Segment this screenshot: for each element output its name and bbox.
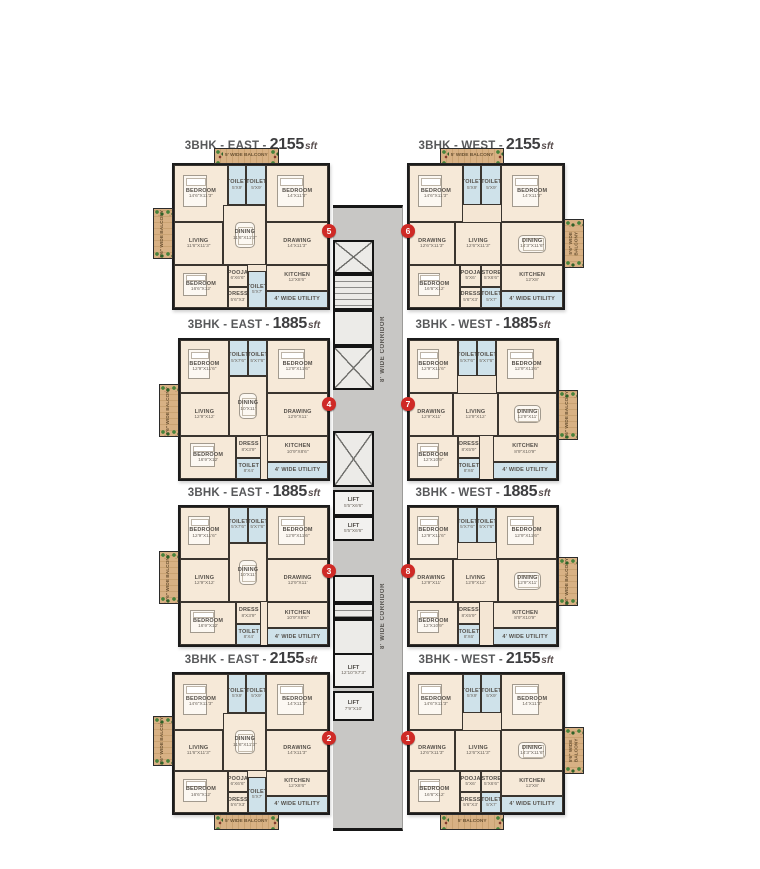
room-dims-label: 5'X7' (486, 803, 496, 808)
room-utility: 4' WIDE UTILITY (493, 628, 557, 645)
room-label: 4' WIDE UTILITY (502, 467, 548, 473)
room-bedroom3: BEDROOM16'9"X12' (180, 602, 236, 645)
room-drawing: DRAWING12'9"X11' (267, 393, 328, 436)
room-bedroom1: BEDROOM14'6"X11'3" (174, 674, 228, 730)
plants-icon (160, 385, 178, 392)
room-dims-label: 5'X7' (252, 290, 262, 295)
unit-title: 3BHK - WEST -1885sft (407, 315, 559, 333)
unit-6-floorplan: BEDROOM14'6"X11'3"TOILET5'X9'TOILET5'X9'… (407, 163, 565, 310)
room-dining: DINING11'6"X11'3" (223, 205, 266, 265)
room-dims-label: 12'9"X11'6" (421, 367, 445, 372)
room-dims-label: 5'X9' (251, 694, 261, 699)
unit-title-area: 2155 (506, 136, 540, 153)
room-bedroom1: BEDROOM12'9"X11'6" (409, 340, 458, 393)
room-dims-label: 10'X11' (240, 573, 255, 578)
room-dress: DRESS8'X3'9" (236, 602, 261, 624)
unit-3-floorplan: BEDROOM12'9"X11'6"TOILET5'X7'6"TOILET5'X… (178, 505, 330, 647)
unit-title-area: 1885 (273, 315, 307, 332)
room-dress: DRESS5'6"X3' (228, 287, 248, 308)
room-drawing: DRAWING14'X11'3" (266, 222, 328, 265)
room-dims-label: 5'X7'6" (460, 525, 475, 530)
room-bedroom2: BEDROOM14'X11'3" (266, 674, 328, 730)
room-dress: DRESS8'X5'9" (458, 602, 480, 624)
room-drawing: DRAWING12'9"X11' (409, 559, 453, 602)
plants-icon (154, 251, 172, 258)
room-dims-label: 12'9"X11'6" (286, 367, 310, 372)
room-dims-label: 12'9"X12' (466, 581, 486, 586)
lift-label: LIFT (348, 700, 360, 707)
room-dining: DINING11'6"X11'3" (223, 713, 266, 771)
room-utility: 4' WIDE UTILITY (493, 462, 557, 479)
room-dims-label: 12'9"X11'6" (515, 534, 539, 539)
open-shaft (333, 310, 374, 346)
room-label: 4' WIDE UTILITY (509, 801, 555, 807)
plants-icon (215, 149, 223, 163)
room-toilet2: TOILET5'X7'6" (477, 507, 496, 543)
room-bedroom3: BEDROOM16'6"X12' (409, 265, 460, 308)
unit-8-floorplan: BEDROOM12'9"X11'6"TOILET5'X7'6"TOILET5'X… (407, 505, 559, 647)
room-dims-label: 12'X8'6" (288, 278, 305, 283)
room-dims-label: 8'9"X10'9" (514, 450, 536, 455)
room-kitchen: KITCHEN12'X8'6" (266, 771, 328, 796)
room-label: 4' WIDE UTILITY (275, 467, 321, 473)
unit-number-badge: 6 (401, 224, 415, 238)
room-dims-label: 5'X7'6" (479, 359, 494, 364)
room-dress: DRESS5'6"X3' (228, 792, 248, 813)
plants-icon (441, 149, 449, 163)
room-dims-label: 12'9"X11' (518, 415, 538, 420)
lift-shaft-cross (333, 240, 374, 274)
room-pooja: POOJA6'X6'6" (228, 771, 248, 792)
plants-icon (154, 209, 172, 216)
plants-icon (270, 149, 278, 163)
room-dining: DINING14'3"X11'6" (501, 730, 563, 772)
unit-1-floorplan: BEDROOM14'6"X11'3"TOILET5'X9'TOILET5'X9'… (407, 672, 565, 815)
room-dims-label: 16'6"X12' (191, 287, 211, 292)
room-pooja: POOJA6'X6'6" (228, 265, 248, 286)
room-dims-label: 5'X7' (486, 298, 496, 303)
unit-title: 3BHK - EAST -1885sft (178, 315, 330, 333)
unit-title-type: 3BHK - EAST - (188, 319, 270, 331)
room-dims-label: 8'X5'9" (462, 614, 477, 619)
room-living: LIVING11'6"X11'3" (174, 222, 223, 265)
room-toilet2: TOILET5'X9' (246, 165, 266, 205)
plants-icon (565, 260, 583, 267)
plants-icon (565, 766, 583, 773)
room-dims-label: 5'6"X3' (463, 298, 478, 303)
unit-title-area: 1885 (503, 315, 537, 332)
room-dims-label: 12'9"X11'6" (192, 367, 216, 372)
room-dims-label: 14'X11'3" (287, 244, 307, 249)
room-bedroom2: BEDROOM14'X11'3" (501, 674, 563, 730)
plants-icon (441, 815, 449, 829)
unit-title-type: 3BHK - WEST - (415, 487, 499, 499)
room-toilet1: TOILET5'X7'6" (458, 340, 477, 376)
wide-balcony: 5' WIDE BALCONY (214, 148, 279, 164)
room-dims-label: 14'6"X11'3" (189, 702, 213, 707)
room-drawing: DRAWING12'9"X11' (409, 393, 453, 436)
room-toilet1: TOILET5'X9' (463, 165, 481, 205)
room-toilet1: TOILET5'X9' (228, 165, 246, 205)
staircase (333, 274, 374, 310)
room-dims-label: 12'9"X11' (421, 415, 441, 420)
unit-number-badge: 1 (401, 731, 415, 745)
typical-floor-plan: LIFT5'5"X6'6"LIFT5'5"X6'6"LIFT12'10"X7'3… (0, 0, 760, 869)
wide-balcony: 5' BALCONY (440, 814, 505, 830)
room-dims-label: 5'X9' (486, 186, 496, 191)
room-dims-label: 5'X9' (486, 694, 496, 699)
unit-title-sft: sft (541, 655, 553, 666)
balcony-label: 5'6" WIDE BALCONY (166, 387, 171, 435)
room-kitchen: KITCHEN12'X8'6" (266, 265, 328, 291)
unit-number-badge: 7 (401, 397, 415, 411)
room-dims-label: 12'9"X12' (466, 415, 486, 420)
room-dims-label: 5'X7' (252, 795, 262, 800)
room-dims-label: 12'6"X11'3" (466, 751, 490, 756)
room-label: 4' WIDE UTILITY (275, 634, 321, 640)
unit-title-area: 1885 (273, 483, 307, 500)
balcony-label: 5' WIDE BALCONY (451, 153, 494, 158)
room-dims-label: 8'X3'9" (241, 614, 256, 619)
room-dims-label: 12'9"X11' (421, 581, 441, 586)
plants-icon (559, 391, 577, 398)
unit-title-area: 1885 (503, 483, 537, 500)
room-dims-label: 12'9"X11'6" (192, 534, 216, 539)
room-dims-label: 5'X9' (232, 694, 242, 699)
room-dims-label: 14'6"X11'3" (424, 702, 448, 707)
unit-title-sft: sft (541, 141, 553, 152)
room-dims-label: 14'X11'3" (522, 702, 542, 707)
lift: LIFT5'5"X6'6" (333, 490, 374, 516)
room-dims-label: 5'6"X3' (231, 803, 246, 808)
room-bedroom3: BEDROOM16'6"X12' (409, 771, 460, 813)
unit-number-badge: 4 (322, 397, 336, 411)
room-label: 4' WIDE UTILITY (509, 296, 555, 302)
room-dims-label: 12'9"X12' (194, 415, 214, 420)
room-bedroom1: BEDROOM14'6"X11'3" (174, 165, 228, 222)
room-living: LIVING12'9"X12' (453, 393, 497, 436)
room-toilet1: TOILET5'X7'6" (458, 507, 477, 543)
lift-shaft-cross (333, 346, 374, 390)
room-dims-label: 10'X11' (240, 407, 255, 412)
room-living: LIVING12'6"X11'3" (455, 730, 501, 772)
room-dims-label: 16'9"X12' (198, 624, 218, 629)
room-dress: DRESS5'6"X3' (460, 287, 482, 308)
room-dims-label: 12'6"X11'3" (420, 751, 444, 756)
room-bedroom2: BEDROOM12'9"X11'6" (496, 507, 557, 559)
lift-dims-label: 5'5"X6'6" (344, 529, 363, 534)
plants-icon (160, 429, 178, 436)
room-dims-label: 12'X10'9" (423, 624, 443, 629)
staircase (333, 603, 374, 619)
room-dims-label: 16'6"X12' (191, 793, 211, 798)
plants-icon (270, 815, 278, 829)
room-dims-label: 8'9"X10'9" (514, 616, 536, 621)
side-balcony: 5'6" WIDE BALCONY (153, 208, 173, 259)
side-balcony: 5'6" WIDE BALCONY (564, 727, 584, 774)
room-dims-label: 8'X6' (464, 635, 474, 640)
lift-dims-label: 12'10"X7'3" (341, 671, 365, 676)
plants-icon (154, 758, 172, 765)
room-toilet2: TOILET5'X7'6" (248, 507, 267, 543)
room-toilet3: TOILET5'X7' (481, 792, 501, 813)
room-kitchen: KITCHEN10'9"X8'6" (267, 602, 328, 628)
room-bedroom2: BEDROOM12'9"X11'6" (267, 340, 328, 393)
unit-title-type: 3BHK - EAST - (188, 487, 270, 499)
room-drawing: DRAWING12'6"X11'3" (409, 730, 455, 772)
room-bedroom3: BEDROOM12'X10'9" (409, 436, 458, 479)
unit-5-floorplan: BEDROOM14'6"X11'3"TOILET5'X9'TOILET5'X9'… (172, 163, 330, 310)
room-utility: 4' WIDE UTILITY (267, 462, 328, 479)
room-dims-label: 12'X8' (526, 278, 539, 283)
room-dining: DINING14'3"X11'6" (501, 222, 563, 265)
open-shaft (333, 619, 374, 655)
room-dims-label: 12'9"X11'6" (515, 367, 539, 372)
unit-2-floorplan: BEDROOM14'6"X11'3"TOILET5'X9'TOILET5'X9'… (172, 672, 330, 815)
room-toilet1: TOILET5'X9' (228, 674, 246, 713)
balcony-label: 5'6" WIDE BALCONY (166, 554, 171, 602)
room-dims-label: 5'X7'6" (231, 525, 246, 530)
room-toilet3: TOILET5'X7' (481, 287, 501, 308)
plants-icon (495, 815, 503, 829)
room-dims-label: 11'6"X11'3" (187, 751, 211, 756)
unit-number-badge: 3 (322, 564, 336, 578)
plants-icon (160, 596, 178, 603)
room-dims-label: 6'X6'6" (231, 782, 246, 787)
unit-title-type: 3BHK - WEST - (415, 319, 499, 331)
room-dress: DRESS8'X5'9" (458, 436, 480, 458)
room-bedroom3: BEDROOM16'6"X12' (174, 265, 228, 308)
room-living: LIVING12'6"X11'3" (455, 222, 501, 265)
unit-title: 3BHK - EAST -1885sft (178, 483, 330, 501)
room-bedroom3: BEDROOM12'X10'9" (409, 602, 458, 645)
room-dims-label: 14'6"X11'3" (424, 194, 448, 199)
plants-icon (495, 149, 503, 163)
room-dims-label: 12'9"X11'6" (421, 534, 445, 539)
room-dims-label: 14'6"X11'3" (189, 194, 213, 199)
room-bedroom2: BEDROOM14'X11'3" (266, 165, 328, 222)
unit-title-sft: sft (308, 320, 320, 331)
room-toilet3: TOILET8'X4' (236, 624, 261, 645)
room-living: LIVING11'6"X11'3" (174, 730, 223, 772)
room-dining: DINING10'X11' (229, 376, 267, 436)
room-dims-label: 14'3"X11'6" (520, 244, 544, 249)
room-label: 4' WIDE UTILITY (274, 801, 320, 807)
room-dims-label: 5'X9' (251, 186, 261, 191)
room-dress: DRESS5'6"X3' (460, 792, 482, 813)
room-dims-label: 11'6"X11'3" (233, 236, 257, 241)
room-living: LIVING12'9"X12' (180, 393, 229, 436)
room-dims-label: 12'X10'9" (423, 458, 443, 463)
room-dims-label: 12'9"X11' (288, 415, 308, 420)
unit-title-sft: sft (538, 488, 550, 499)
balcony-label: 5'6" WIDE BALCONY (160, 210, 165, 258)
central-corridor: LIFT5'5"X6'6"LIFT5'5"X6'6"LIFT12'10"X7'3… (333, 205, 403, 831)
room-dims-label: 8'X3'9" (241, 448, 256, 453)
room-dress: DRESS8'X3'9" (236, 436, 261, 458)
room-utility: 4' WIDE UTILITY (266, 291, 328, 308)
room-store: STORE5'X6'6" (481, 265, 501, 286)
room-dims-label: 10'9"X8'6" (287, 450, 309, 455)
room-bedroom1: BEDROOM14'6"X11'3" (409, 674, 463, 730)
room-dims-label: 14'X11'3" (287, 702, 307, 707)
room-dims-label: 8'X5'9" (462, 448, 477, 453)
lift-dims-label: 5'5"X6'6" (344, 504, 363, 509)
room-dims-label: 12'9"X11'6" (286, 534, 310, 539)
room-dims-label: 5'6"X3' (231, 298, 246, 303)
room-dims-label: 12'6"X11'3" (420, 244, 444, 249)
unit-title: 3BHK - WEST -2155sft (407, 650, 565, 668)
unit-title: 3BHK - WEST -1885sft (407, 483, 559, 501)
room-living: LIVING12'9"X12' (453, 559, 497, 602)
room-pooja: POOJA5'X6' (460, 265, 482, 286)
unit-7-floorplan: BEDROOM12'9"X11'6"TOILET5'X7'6"TOILET5'X… (407, 338, 559, 481)
side-balcony: 5'6" WIDE BALCONY (558, 557, 578, 607)
room-dims-label: 5'X7'6" (460, 359, 475, 364)
room-dims-label: 8'X4' (244, 635, 254, 640)
room-bedroom1: BEDROOM12'9"X11'6" (180, 507, 229, 559)
room-dims-label: 5'X9' (232, 186, 242, 191)
unit-title-type: 3BHK - EAST - (185, 654, 267, 666)
unit-title-sft: sft (308, 488, 320, 499)
room-dims-label: 12'9"X12' (194, 581, 214, 586)
room-dims-label: 12'6"X11'3" (466, 244, 490, 249)
unit-title-type: 3BHK - WEST - (418, 654, 502, 666)
plants-icon (565, 728, 583, 735)
unit-number-badge: 8 (401, 564, 415, 578)
side-balcony: 5'6" WIDE BALCONY (564, 219, 584, 268)
room-dims-label: 12'9"X11' (288, 581, 308, 586)
side-balcony: 5'6" WIDE BALCONY (558, 390, 578, 440)
open-shaft (333, 575, 374, 603)
room-toilet3: TOILET8'X4' (236, 458, 261, 479)
unit-title-sft: sft (538, 320, 550, 331)
room-toilet2: TOILET5'X7'6" (248, 340, 267, 376)
unit-title-sft: sft (305, 141, 317, 152)
plants-icon (565, 220, 583, 227)
room-dims-label: 16'9"X12' (198, 458, 218, 463)
balcony-label: 5' WIDE BALCONY (225, 153, 268, 158)
room-toilet1: TOILET5'X7'6" (229, 507, 248, 543)
room-toilet2: TOILET5'X9' (481, 165, 501, 205)
room-kitchen: KITCHEN8'9"X10'9" (493, 436, 557, 462)
room-kitchen: KITCHEN8'9"X10'9" (493, 602, 557, 628)
corridor-width-label: 8' WIDE CORRIDOR (380, 578, 386, 653)
room-bedroom1: BEDROOM14'6"X11'3" (409, 165, 463, 222)
room-bedroom1: BEDROOM12'9"X11'6" (409, 507, 458, 559)
room-dims-label: 6'X6'6" (231, 276, 246, 281)
plants-icon (160, 552, 178, 559)
balcony-label: 5' BALCONY (458, 819, 487, 824)
room-dims-label: 16'6"X12' (424, 793, 444, 798)
room-drawing: DRAWING12'6"X11'3" (409, 222, 455, 265)
room-toilet3: TOILET8'X6' (458, 458, 480, 479)
room-pooja: POOJA5'X6' (460, 771, 482, 792)
room-utility: 4' WIDE UTILITY (266, 796, 328, 813)
plants-icon (559, 598, 577, 605)
room-dims-label: 11'6"X11'3" (187, 244, 211, 249)
room-dims-label: 5'X7'6" (479, 525, 494, 530)
room-bedroom3: BEDROOM16'9"X12' (180, 436, 236, 479)
room-utility: 4' WIDE UTILITY (501, 796, 563, 813)
room-dims-label: 12'X8' (526, 784, 539, 789)
unit-title-sft: sft (305, 655, 317, 666)
unit-number-badge: 2 (322, 731, 336, 745)
room-dims-label: 10'9"X8'6" (287, 616, 309, 621)
room-toilet2: TOILET5'X7'6" (477, 340, 496, 376)
room-dims-label: 5'X7'6" (250, 525, 265, 530)
room-toilet2: TOILET5'X9' (481, 674, 501, 713)
room-toilet2: TOILET5'X9' (246, 674, 266, 713)
lift-dims-label: 7'9"X10' (345, 707, 362, 712)
lift: LIFT7'9"X10' (333, 691, 374, 721)
lift: LIFT12'10"X7'3" (333, 653, 374, 688)
plants-icon (215, 815, 223, 829)
wide-balcony: 5' WIDE BALCONY (214, 814, 279, 830)
room-kitchen: KITCHEN10'9"X8'6" (267, 436, 328, 462)
room-dims-label: 8'X4' (244, 469, 254, 474)
room-bedroom2: BEDROOM12'9"X11'6" (267, 507, 328, 559)
room-dining: DINING10'X11' (229, 543, 267, 602)
unit-number-badge: 5 (322, 224, 336, 238)
unit-title-area: 2155 (270, 650, 304, 667)
room-dims-label: 11'6"X11'3" (233, 743, 257, 748)
room-dims-label: 5'X6' (465, 782, 475, 787)
room-dims-label: 5'X6'6" (484, 782, 499, 787)
corridor-width-label: 8' WIDE CORRIDOR (380, 311, 386, 386)
room-toilet3: TOILET5'X7' (248, 271, 266, 308)
room-utility: 4' WIDE UTILITY (501, 291, 563, 308)
plants-icon (559, 432, 577, 439)
room-dims-label: 8'X6' (464, 469, 474, 474)
room-dims-label: 12'9"X11' (518, 581, 538, 586)
side-balcony: 5'6" WIDE BALCONY (159, 384, 179, 437)
room-toilet3: TOILET5'X7' (248, 777, 266, 813)
room-label: 4' WIDE UTILITY (274, 296, 320, 302)
plants-icon (154, 717, 172, 724)
room-dims-label: 5'6"X3' (463, 803, 478, 808)
room-dims-label: 14'X11'3" (287, 194, 307, 199)
room-dims-label: 16'6"X12' (424, 287, 444, 292)
room-toilet3: TOILET8'X6' (458, 624, 480, 645)
plants-icon (559, 558, 577, 565)
room-kitchen: KITCHEN12'X8' (501, 771, 563, 796)
room-dims-label: 12'X8'6" (288, 784, 305, 789)
lift-label: LIFT (348, 497, 360, 504)
lift-shaft-cross (333, 431, 374, 487)
room-dims-label: 14'3"X11'6" (520, 751, 544, 756)
room-drawing: DRAWING14'X11'3" (266, 730, 328, 772)
room-dims-label: 5'X9' (467, 694, 477, 699)
room-utility: 4' WIDE UTILITY (267, 628, 328, 645)
unit-title: 3BHK - EAST -2155sft (172, 650, 330, 668)
room-bedroom2: BEDROOM12'9"X11'6" (496, 340, 557, 393)
room-dining: DINING12'9"X11' (498, 393, 557, 436)
room-bedroom3: BEDROOM16'6"X12' (174, 771, 228, 813)
room-kitchen: KITCHEN12'X8' (501, 265, 563, 291)
balcony-label: 5' WIDE BALCONY (225, 819, 268, 824)
room-dims-label: 5'X7'6" (231, 359, 246, 364)
room-living: LIVING12'9"X12' (180, 559, 229, 602)
unit-4-floorplan: BEDROOM12'9"X11'6"TOILET5'X7'6"TOILET5'X… (178, 338, 330, 481)
room-dims-label: 5'X6' (465, 276, 475, 281)
room-dims-label: 5'X9' (467, 186, 477, 191)
room-toilet1: TOILET5'X9' (463, 674, 481, 713)
side-balcony: 5'6" WIDE BALCONY (153, 716, 173, 766)
room-dims-label: 5'X6'6" (484, 276, 499, 281)
room-bedroom2: BEDROOM14'X11'3" (501, 165, 563, 222)
wide-balcony: 5' WIDE BALCONY (440, 148, 505, 164)
